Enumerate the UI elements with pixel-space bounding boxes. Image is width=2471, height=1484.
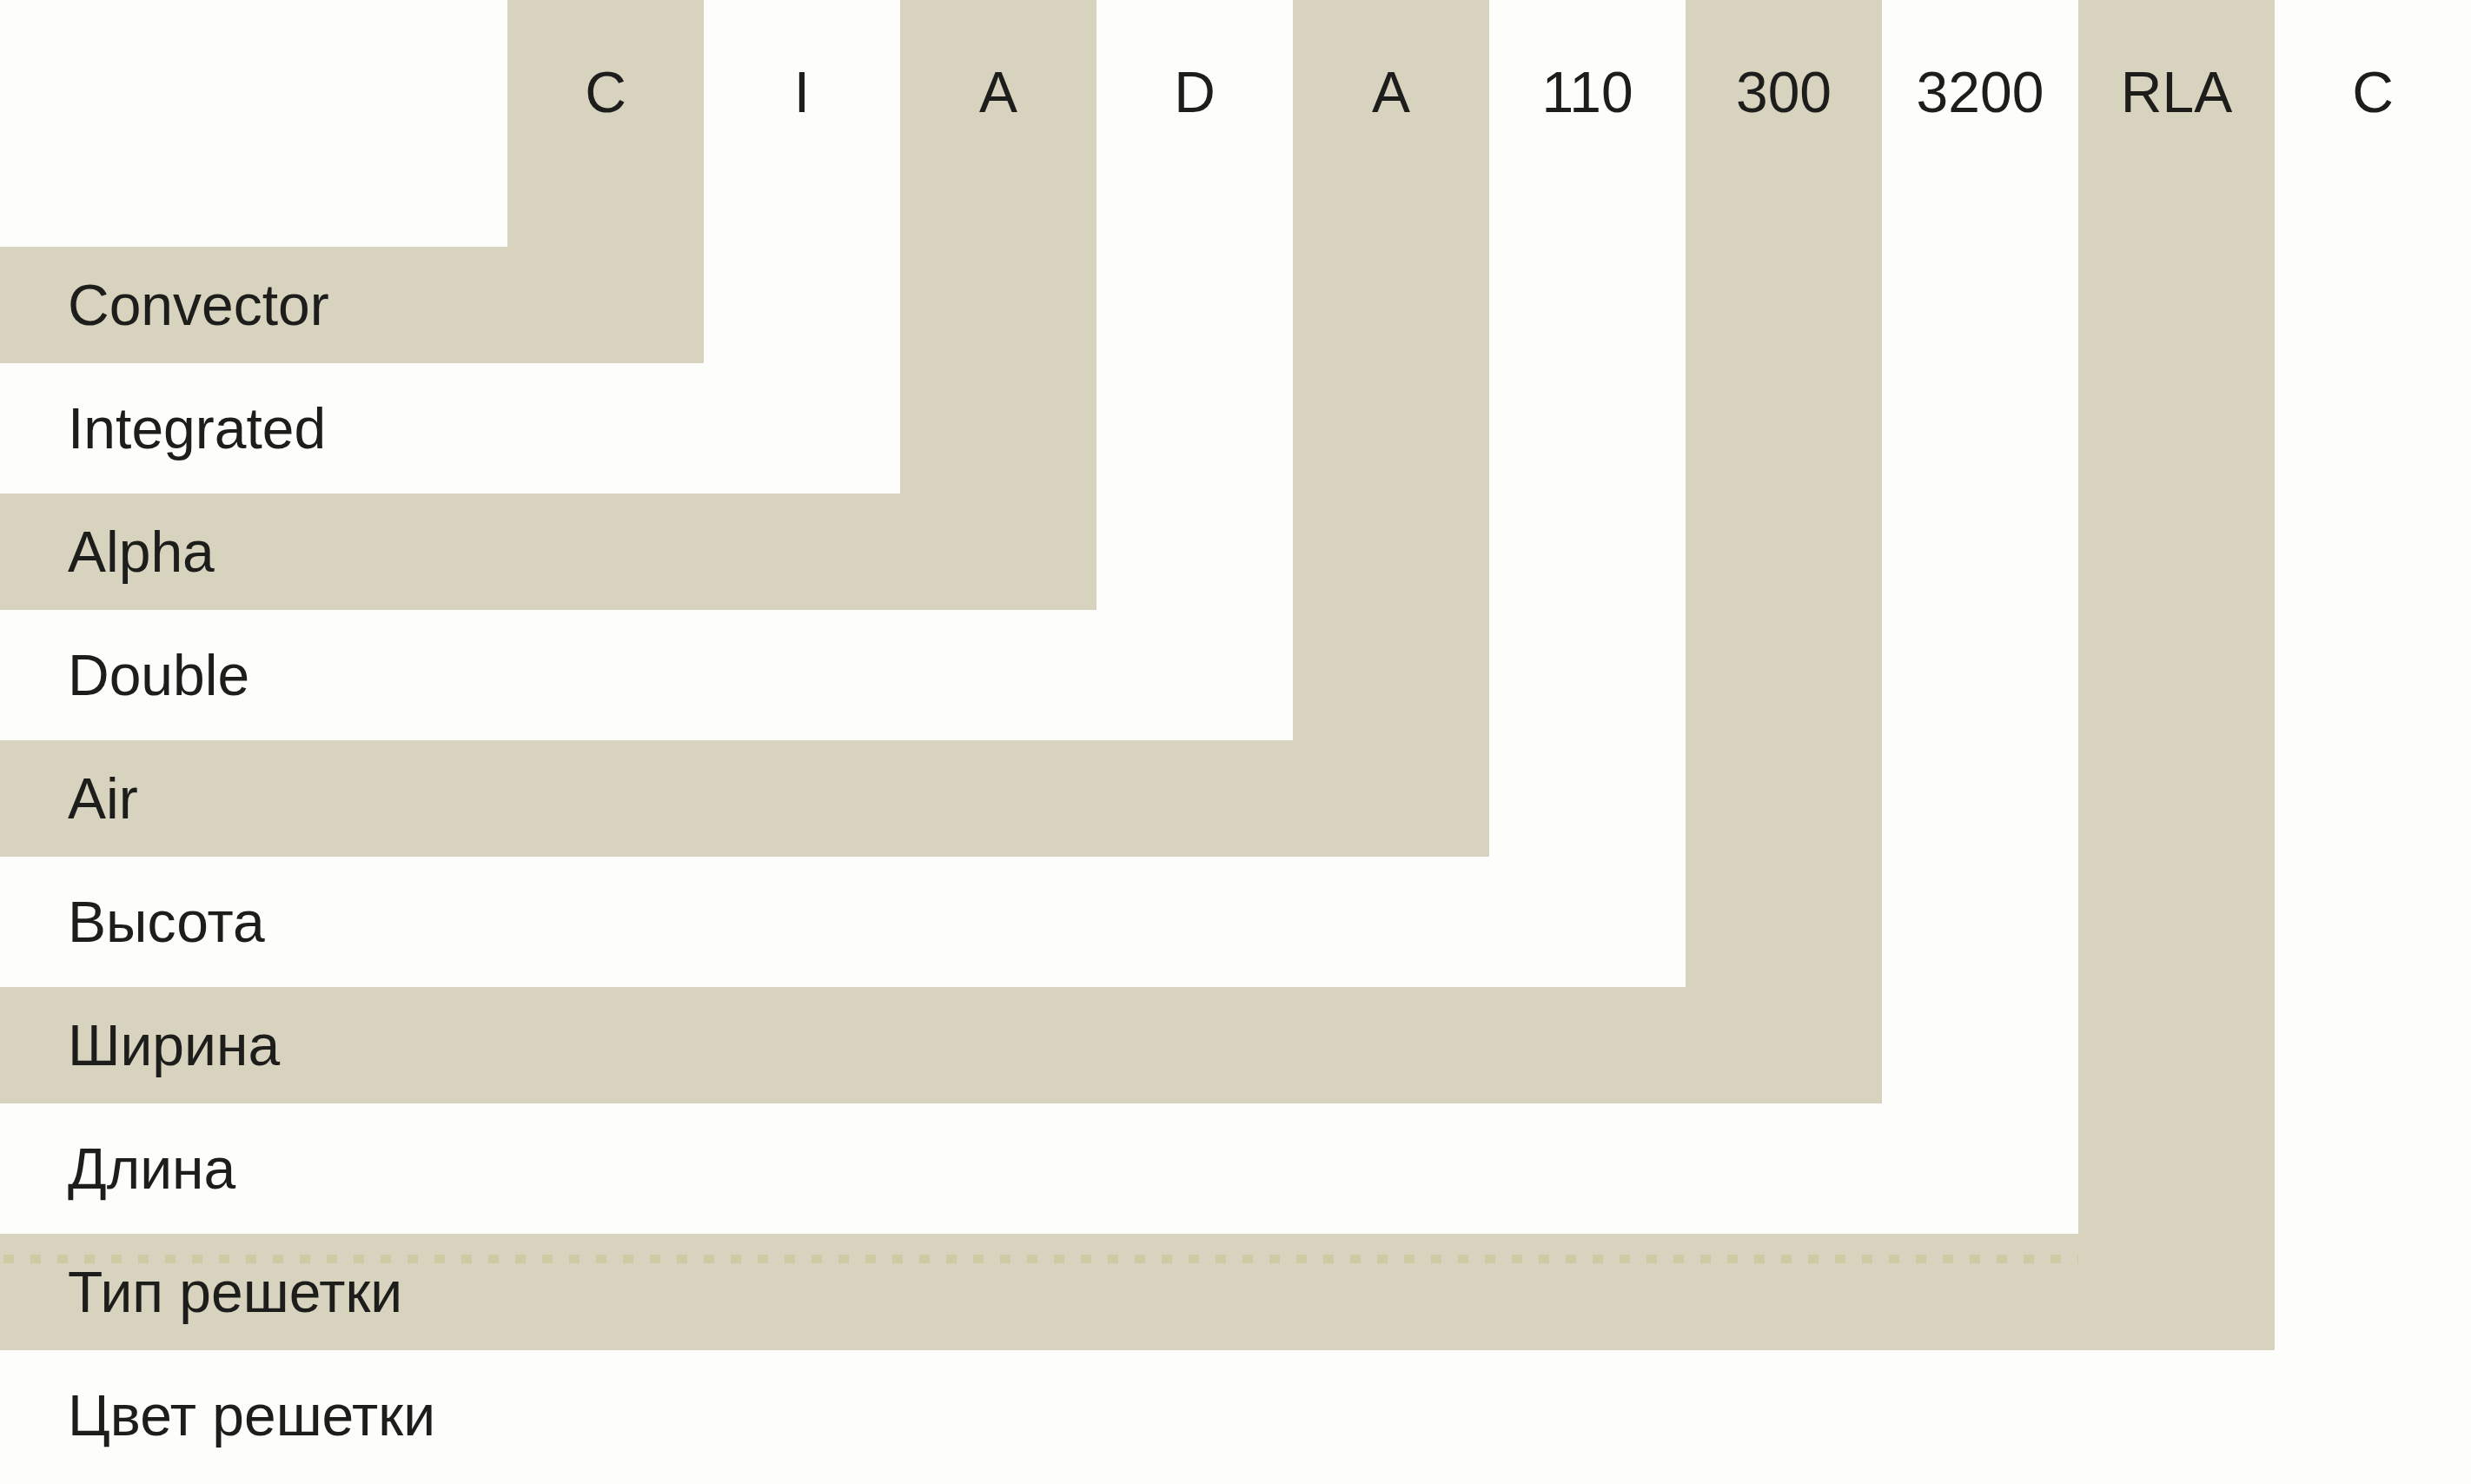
row-label-1: Convector [68, 276, 329, 334]
row-label-9: Тип решетки [68, 1263, 402, 1321]
row-label-4: Double [68, 646, 249, 704]
code-cell-5: A [1293, 63, 1489, 121]
row-label-8: Длина [68, 1140, 235, 1197]
code-cell-3: A [900, 63, 1096, 121]
row-label-3: Alpha [68, 523, 215, 580]
code-cell-7: 300 [1686, 63, 1882, 121]
code-cell-8: 3200 [1882, 63, 2078, 121]
code-cell-4: D [1096, 63, 1293, 121]
row-band [0, 987, 1882, 1103]
row-label-2: Integrated [68, 400, 326, 457]
row-label-7: Ширина [68, 1017, 280, 1074]
row-label-5: Air [68, 770, 138, 827]
column-band [1686, 0, 1882, 1103]
code-cell-1: C [507, 63, 704, 121]
row-label-10: Цвет решетки [68, 1387, 435, 1444]
nomenclature-decoder-diagram: CConvectorIIntegratedAAlphaDDoubleAAir11… [0, 0, 2471, 1484]
column-band [1293, 0, 1489, 857]
row-label-6: Высота [68, 893, 265, 951]
code-cell-6: 110 [1489, 63, 1686, 121]
code-cell-10: C [2275, 63, 2471, 121]
code-cell-9: RLA [2078, 63, 2275, 121]
column-band [2078, 0, 2275, 1350]
row-band [0, 740, 1489, 857]
code-cell-2: I [704, 63, 900, 121]
